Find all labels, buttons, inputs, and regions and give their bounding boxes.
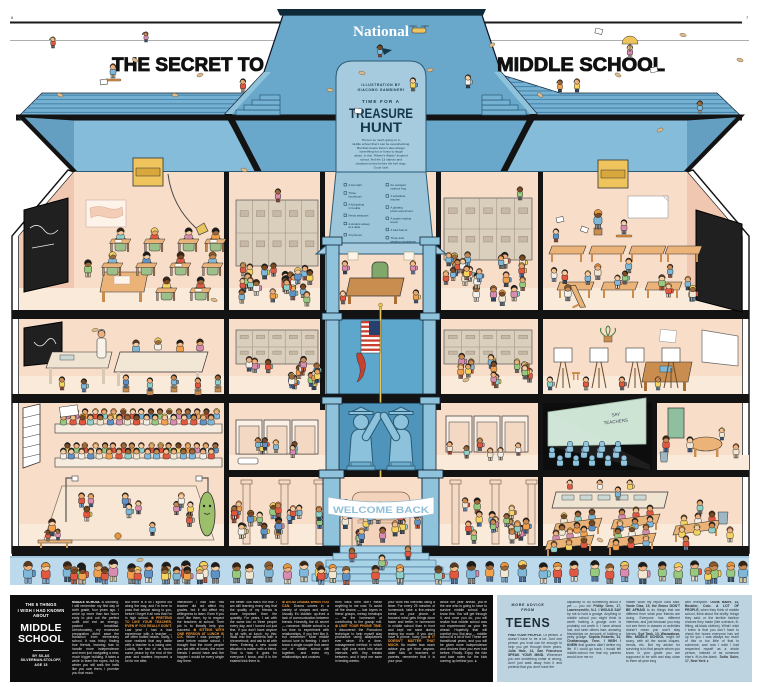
svg-text:Good luck!: Good luck! <box>374 165 389 169</box>
svg-text:science frog: science frog <box>390 186 406 190</box>
svg-text:wearing sunglasses: wearing sunglasses <box>390 239 416 243</box>
svg-text:ILLUSTRATION BY: ILLUSTRATION BY <box>361 83 400 87</box>
svg-text:WELCOME BACK: WELCOME BACK <box>333 505 429 516</box>
svg-text:National: National <box>353 24 409 40</box>
svg-text:at a desk: at a desk <box>348 225 360 229</box>
svg-text:TIME FOR A: TIME FOR A <box>362 99 400 104</box>
svg-text:A lost tight: A lost tight <box>348 183 362 187</box>
svg-text:HUNT: HUNT <box>360 119 402 135</box>
svg-text:13 phones: 13 phones <box>348 233 362 237</box>
svg-text:teacher: teacher <box>390 198 400 202</box>
svg-text:lunchroom: lunchroom <box>348 195 362 199</box>
svg-text:levels: levels <box>390 220 398 224</box>
svg-text:in trouble: in trouble <box>348 206 360 210</box>
svg-text:A bad haircut: A bad haircut <box>390 228 407 232</box>
svg-text:GIACOMO GAMBINERI: GIACOMO GAMBINERI <box>357 88 404 92</box>
svg-text:photo experiment: photo experiment <box>390 209 413 213</box>
svg-text:Nerdy weapons: Nerdy weapons <box>348 214 369 218</box>
svg-text:SAY: SAY <box>611 412 620 418</box>
svg-text:MIDDLE SCHOOL: MIDDLE SCHOOL <box>497 55 665 76</box>
